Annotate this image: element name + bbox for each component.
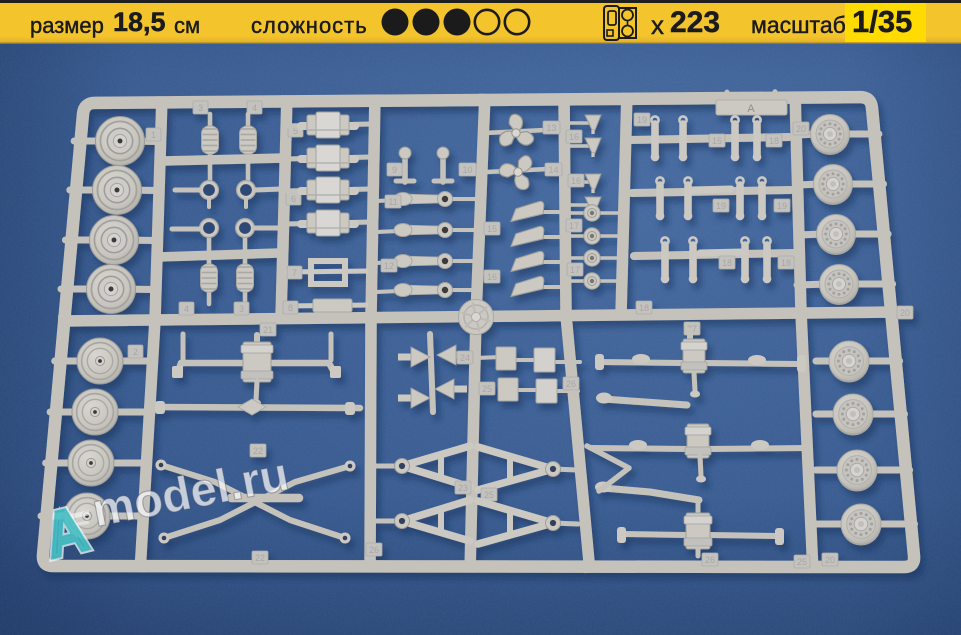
svg-text:4: 4 — [252, 103, 257, 113]
svg-text:12: 12 — [384, 261, 394, 271]
svg-text:22: 22 — [255, 553, 265, 563]
svg-text:25: 25 — [484, 490, 494, 500]
svg-text:10: 10 — [462, 165, 472, 175]
svg-text:20: 20 — [796, 124, 806, 134]
svg-text:3: 3 — [198, 103, 203, 113]
svg-text:2: 2 — [133, 347, 138, 357]
svg-text:24: 24 — [460, 353, 470, 363]
svg-text:9: 9 — [392, 165, 397, 175]
svg-text:1: 1 — [151, 130, 156, 140]
svg-text:13: 13 — [546, 123, 556, 133]
svg-text:4: 4 — [184, 304, 189, 314]
svg-text:7: 7 — [292, 268, 297, 278]
svg-text:26: 26 — [369, 545, 379, 555]
svg-text:15: 15 — [712, 136, 722, 146]
svg-text:25: 25 — [797, 557, 807, 567]
svg-text:18: 18 — [639, 303, 649, 313]
svg-text:14: 14 — [548, 165, 558, 175]
svg-text:19: 19 — [716, 201, 726, 211]
svg-text:20: 20 — [900, 308, 910, 318]
svg-text:26: 26 — [705, 555, 715, 565]
svg-text:16: 16 — [569, 132, 579, 142]
svg-text:17: 17 — [570, 265, 580, 275]
svg-text:21: 21 — [263, 325, 273, 335]
svg-text:15: 15 — [487, 224, 497, 234]
svg-text:A: A — [747, 103, 755, 115]
svg-text:8: 8 — [288, 303, 293, 313]
svg-text:18: 18 — [722, 258, 732, 268]
svg-text:18: 18 — [781, 258, 791, 268]
svg-text:6: 6 — [291, 194, 296, 204]
svg-text:20: 20 — [825, 555, 835, 565]
svg-text:17: 17 — [569, 221, 579, 231]
svg-text:18: 18 — [769, 136, 779, 146]
svg-text:19: 19 — [777, 201, 787, 211]
svg-text:19: 19 — [637, 115, 647, 125]
svg-text:3: 3 — [239, 304, 244, 314]
svg-text:25: 25 — [482, 384, 492, 394]
svg-text:26: 26 — [566, 379, 576, 389]
svg-text:16: 16 — [487, 272, 497, 282]
svg-text:11: 11 — [388, 197, 397, 207]
svg-text:16: 16 — [571, 176, 581, 186]
svg-text:23: 23 — [458, 483, 468, 493]
